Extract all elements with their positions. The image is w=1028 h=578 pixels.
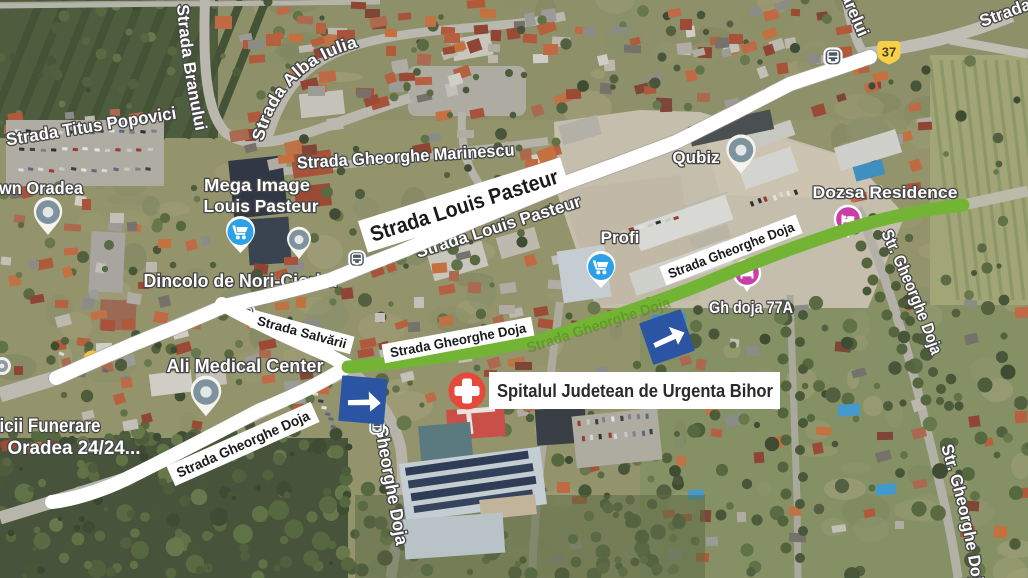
svg-text:wn Oradea: wn Oradea <box>0 178 83 198</box>
svg-text:icii Funerare: icii Funerare <box>0 416 101 437</box>
svg-text:Dozsa Residence: Dozsa Residence <box>813 183 958 202</box>
svg-text:Louis Pasteur: Louis Pasteur <box>204 196 319 216</box>
svg-text:37: 37 <box>882 45 896 60</box>
svg-text:Spitalul Judetean de Urgenta B: Spitalul Judetean de Urgenta Bihor <box>497 380 773 401</box>
svg-text:Mega Image: Mega Image <box>204 175 310 195</box>
svg-text:Qubiz: Qubiz <box>672 148 719 167</box>
svg-text:Profi: Profi <box>601 228 640 247</box>
svg-text:Ali Medical Center: Ali Medical Center <box>167 356 324 376</box>
svg-text:Oradea 24/24...: Oradea 24/24... <box>8 438 141 459</box>
svg-text:Gh doja 77A: Gh doja 77A <box>709 298 793 317</box>
